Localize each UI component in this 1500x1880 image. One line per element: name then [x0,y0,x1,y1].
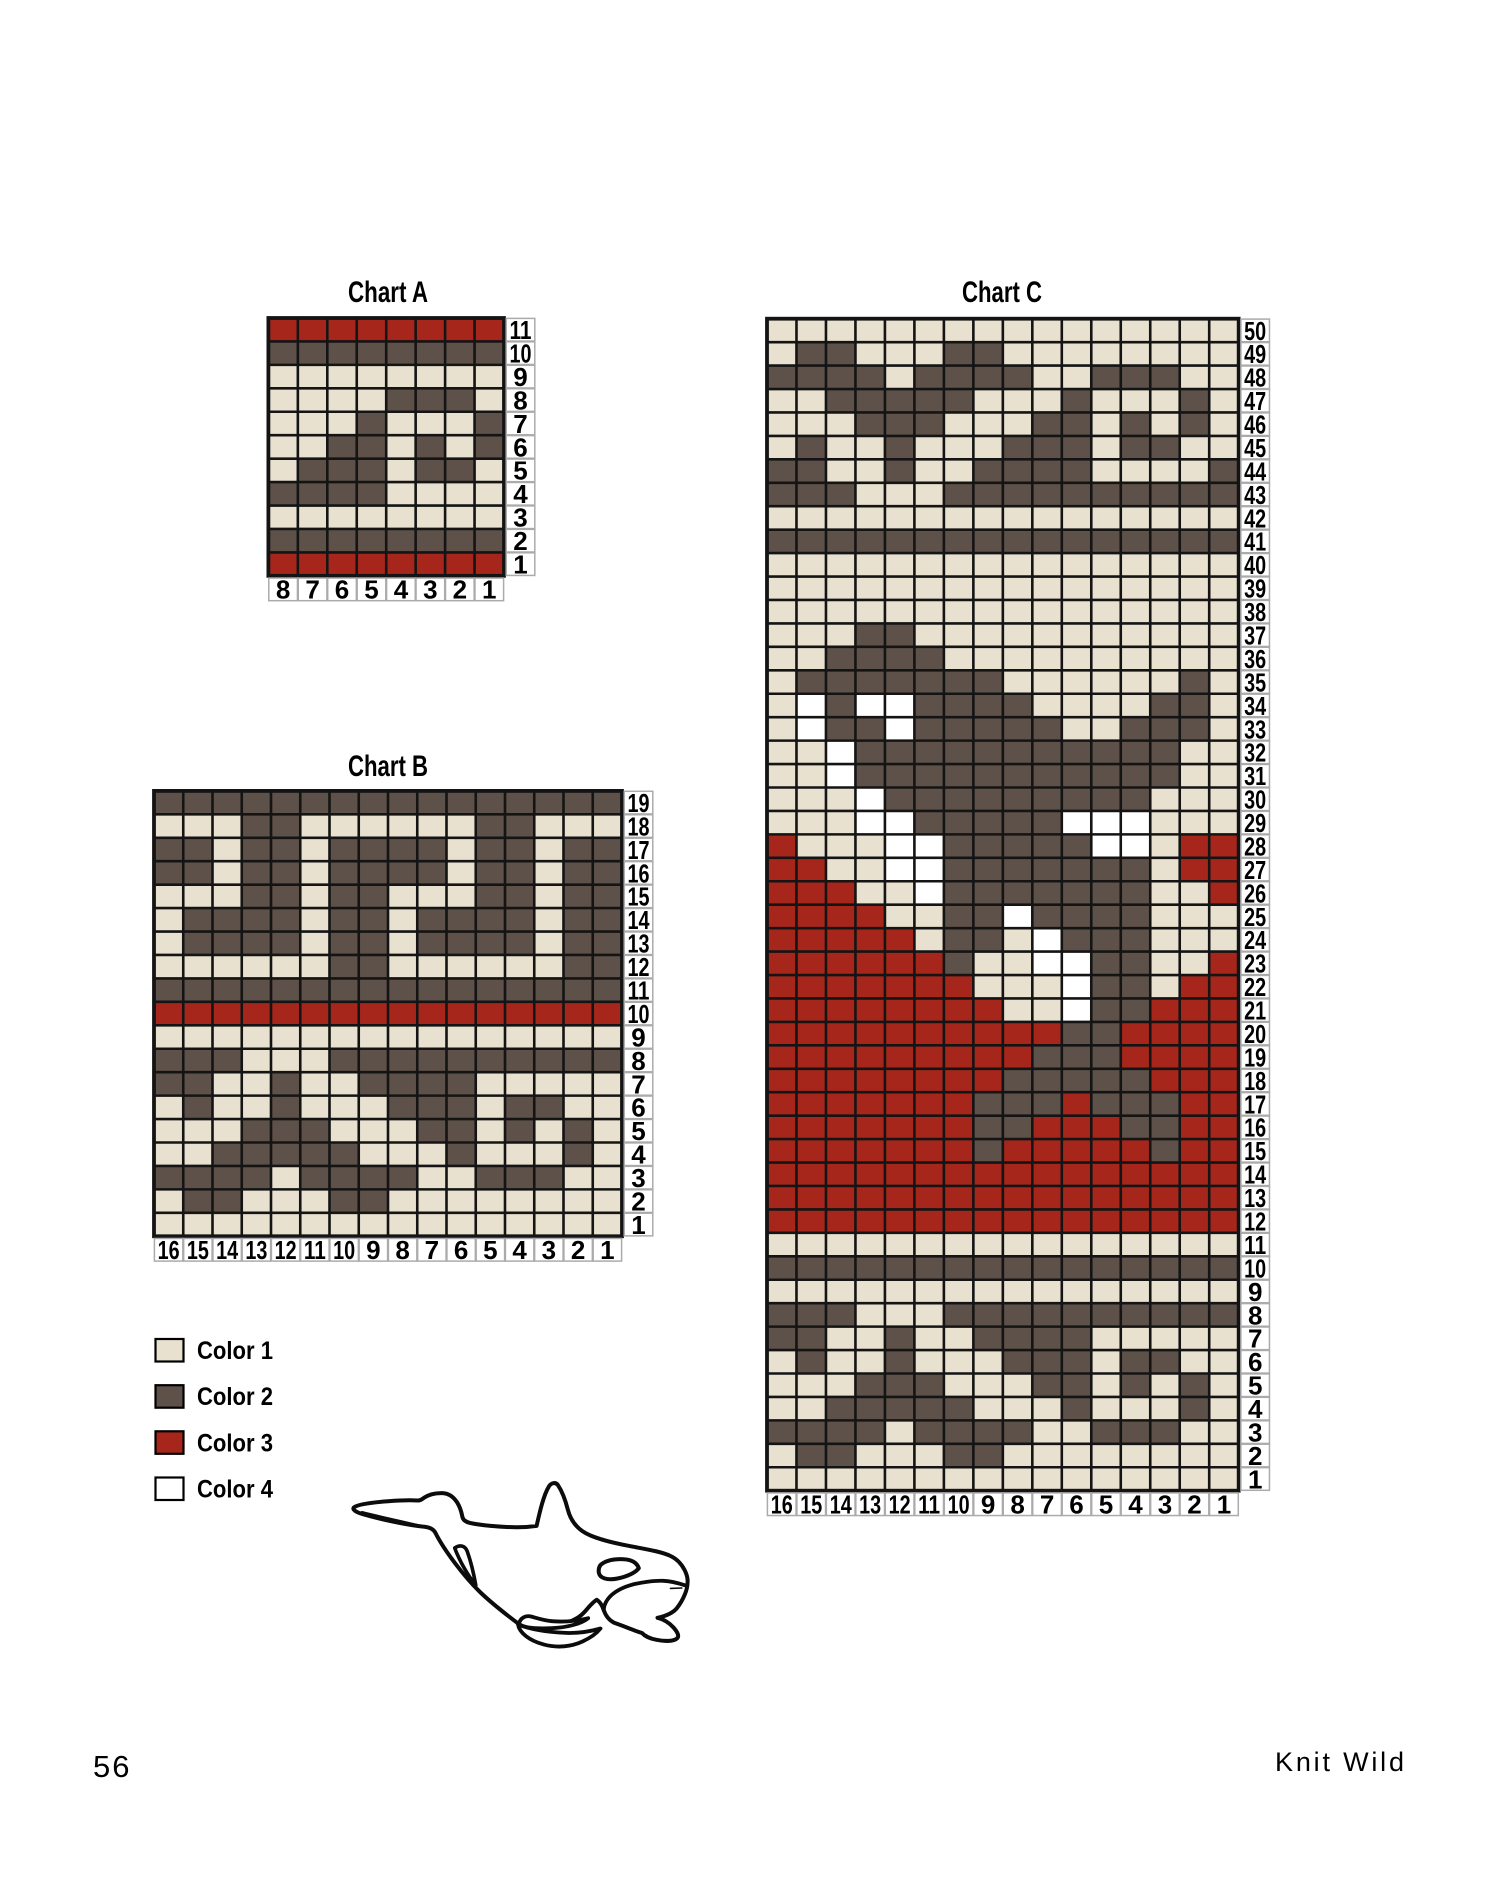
svg-text:4: 4 [394,575,409,605]
svg-text:1: 1 [1248,1464,1262,1494]
svg-text:3: 3 [423,575,437,605]
svg-text:14: 14 [830,1490,852,1520]
svg-text:16: 16 [771,1490,793,1520]
svg-text:Color 2: Color 2 [197,1383,273,1411]
svg-text:1: 1 [482,575,496,605]
svg-text:9: 9 [981,1490,995,1520]
svg-text:Color 4: Color 4 [197,1476,273,1504]
svg-text:14: 14 [216,1235,238,1265]
svg-text:5: 5 [364,575,378,605]
svg-text:3: 3 [1158,1490,1172,1520]
svg-text:1: 1 [600,1235,614,1265]
svg-text:3: 3 [542,1235,556,1265]
svg-text:8: 8 [395,1235,409,1265]
svg-text:1: 1 [1217,1490,1231,1520]
svg-text:7: 7 [425,1235,439,1265]
svg-text:1: 1 [631,1210,645,1240]
svg-text:16: 16 [158,1235,180,1265]
svg-text:Chart B: Chart B [348,750,428,783]
svg-text:Chart C: Chart C [962,276,1042,309]
svg-text:1: 1 [513,549,527,579]
svg-text:10: 10 [333,1235,355,1265]
svg-text:7: 7 [305,575,319,605]
svg-text:15: 15 [187,1235,209,1265]
svg-text:7: 7 [1040,1490,1054,1520]
svg-text:8: 8 [1010,1490,1024,1520]
svg-text:8: 8 [276,575,290,605]
svg-text:6: 6 [335,575,349,605]
svg-text:56: 56 [93,1749,131,1784]
svg-text:4: 4 [1128,1490,1143,1520]
svg-text:5: 5 [1099,1490,1113,1520]
svg-text:2: 2 [1187,1490,1201,1520]
svg-text:Color 1: Color 1 [197,1337,273,1365]
svg-text:4: 4 [512,1235,527,1265]
svg-text:12: 12 [889,1490,911,1520]
svg-text:2: 2 [571,1235,585,1265]
svg-text:Color 3: Color 3 [197,1429,273,1457]
svg-text:2: 2 [453,575,467,605]
svg-text:12: 12 [275,1235,297,1265]
svg-text:15: 15 [800,1490,822,1520]
svg-text:6: 6 [454,1235,468,1265]
svg-text:10: 10 [948,1490,970,1520]
svg-text:13: 13 [245,1235,267,1265]
svg-text:5: 5 [483,1235,497,1265]
svg-text:13: 13 [859,1490,881,1520]
svg-text:6: 6 [1069,1490,1083,1520]
svg-text:11: 11 [918,1490,940,1520]
svg-text:9: 9 [366,1235,380,1265]
svg-text:Chart A: Chart A [348,276,428,309]
svg-text:11: 11 [304,1235,326,1265]
